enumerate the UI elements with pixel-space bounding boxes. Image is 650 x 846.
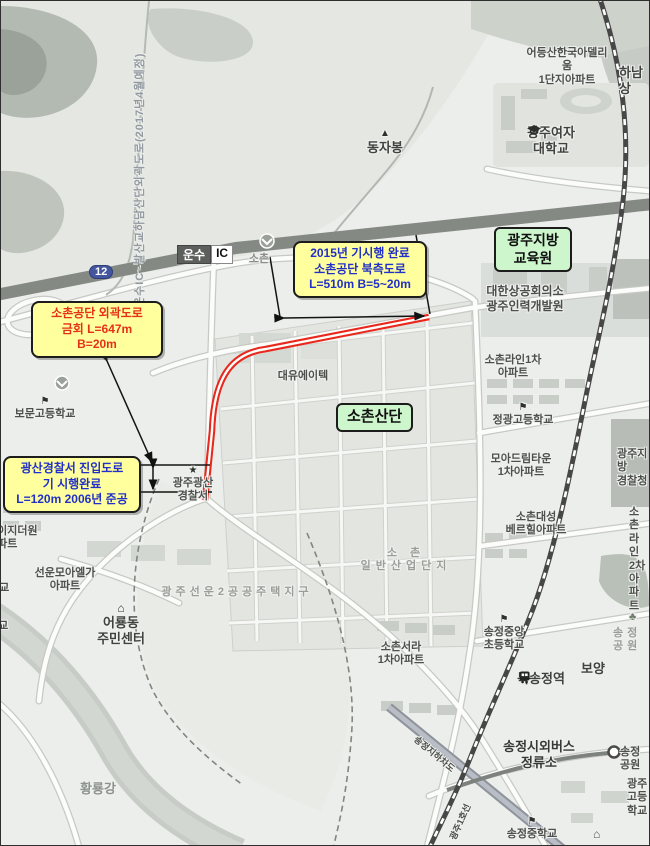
highlight-education-office: 광주지방 교육원 bbox=[494, 227, 572, 272]
label-sochon-daesung-apt: 소촌대성 베르힐아파트 bbox=[506, 511, 567, 538]
label-daeyou-aitech: 대유에이텍 bbox=[278, 370, 329, 383]
label-ejideowon-apt: 구이지더원 아파트 bbox=[0, 525, 38, 552]
label-text: 정광고등학교 bbox=[493, 414, 554, 427]
building-icon: ⌂ bbox=[593, 827, 600, 842]
label-hwangnyong-river: 황룡강 bbox=[80, 781, 116, 797]
interchange-label: 운수 IC bbox=[177, 245, 233, 264]
annotation-line: 소촌공단 북측도로 bbox=[314, 262, 406, 276]
label-school-clipped: 학교 bbox=[0, 620, 8, 633]
label-sochon-small: 소촌 bbox=[249, 253, 269, 266]
annotation-line: 기 시행완료 bbox=[43, 477, 102, 491]
interchange-name: 운수 bbox=[177, 245, 211, 264]
label-adellium-apt: 어등산한국아델리움 1단지아파트 bbox=[526, 47, 608, 87]
label-hanam: 하남상 bbox=[619, 65, 649, 97]
label-text: 광주광산 경찰서 bbox=[173, 477, 213, 504]
tree-icon: ♣ bbox=[629, 611, 636, 624]
school-icon: ⚑ bbox=[528, 817, 537, 827]
school-icon: ⚑ bbox=[500, 615, 509, 625]
label-park-station: 송정공원 bbox=[620, 746, 649, 773]
annotation-line: 광산경찰서 진입도로 bbox=[21, 461, 124, 475]
label-text: 송정중앙 초등학교 bbox=[484, 626, 524, 653]
label-buksongjeong-station: 북송정역 bbox=[517, 671, 565, 687]
label-songjeong-park: 송정공원 bbox=[613, 627, 649, 654]
label-songjeong-ms: ⚑ 송정중학교 bbox=[507, 817, 558, 841]
annotation-outer-road: 소촌공단 외곽도로금회 L=647mB=20m bbox=[31, 301, 163, 358]
label-dongjabong: ▲ 동자봉 bbox=[367, 129, 403, 156]
annotation-line: 소촌공단 외곽도로 bbox=[51, 306, 143, 320]
label-sochon-line1-apt: 소촌라인1차 아파트 bbox=[485, 354, 542, 381]
annotation-line: L=120m 2006년 준공 bbox=[16, 492, 128, 506]
school-icon: ⚑ bbox=[41, 397, 50, 407]
subway-station-marker bbox=[609, 747, 620, 758]
label-gwangsan-police-station: ★ 광주광산 경찰서 bbox=[173, 466, 213, 504]
annotation-line: B=20m bbox=[77, 337, 117, 351]
label-seonun2-district: 광주선운2공공주택지구 bbox=[161, 586, 312, 599]
label-text: 송정중학교 bbox=[507, 828, 558, 841]
label-sochon-seora-apt: 소촌서라 1차아파트 bbox=[378, 641, 425, 668]
annotation-line: 금회 L=647m bbox=[62, 322, 132, 336]
label-eoryong-center: ⌂ 어룡동 주민센터 bbox=[97, 602, 145, 647]
annotation-line: 2015년 기시행 완료 bbox=[310, 246, 410, 260]
label-boyang: 보양 bbox=[581, 661, 605, 677]
school-icon: ⚑ bbox=[519, 403, 528, 413]
interchange-ic-tag: IC bbox=[211, 245, 233, 264]
label-text: 보문고등학교 bbox=[15, 408, 76, 421]
label-gwangju-police-hq: 광주지방 경찰청 bbox=[617, 448, 649, 488]
police-badge-icon: ★ bbox=[189, 466, 198, 476]
label-songjeong-jungang-es: ⚑ 송정중앙 초등학교 bbox=[484, 615, 524, 653]
annotation-line: L=510m B=5~20m bbox=[309, 277, 411, 291]
planned-road-label: 운수IC~발산교하남산단외곽도로(2017년4월예정) bbox=[131, 0, 147, 307]
highlight-sochon-sandan: 소촌산단 bbox=[336, 403, 413, 432]
route-shield: 12 bbox=[89, 265, 113, 279]
label-kcci: 대한상공회의소 광주인력개발원 bbox=[486, 284, 563, 313]
annotation-access-road: 광산경찰서 진입도로기 시행완료L=120m 2006년 준공 bbox=[3, 456, 141, 513]
community-center-icon: ⌂ bbox=[117, 602, 124, 614]
label-school-clipped: 학교 bbox=[0, 582, 9, 595]
map-canvas[interactable]: 운수IC~발산교하남산단외곽도로(2017년4월예정) 운수 IC 12 어등산… bbox=[0, 0, 650, 846]
university-icon bbox=[527, 125, 541, 135]
label-text: 동자봉 bbox=[367, 140, 403, 156]
label-moa-dream-apt: 모아드림타운 1차아파트 bbox=[491, 453, 552, 480]
label-sunun-moa-apt: 선운모아엘가 아파트 bbox=[35, 567, 96, 594]
mountain-peak-icon: ▲ bbox=[380, 129, 390, 139]
label-bomun-hs: ⚑ 보문고등학교 bbox=[15, 397, 76, 421]
label-jeonggwang-hs: ⚑ 정광고등학교 bbox=[493, 403, 554, 427]
label-bus-terminal: 송정시외버스 정류소 bbox=[503, 739, 575, 771]
label-sochon-line2-apt: 소촌라인 2차아파트 bbox=[629, 506, 649, 613]
annotation-north-road: 2015년 기시행 완료소촌공단 북측도로L=510m B=5~20m bbox=[293, 241, 427, 298]
label-sochon-industrial: 소 촌 일반산업단지 bbox=[361, 547, 452, 574]
label-womens-university: 광주여자 대학교 bbox=[527, 125, 575, 157]
label-gwangju-hs: 광주 고등학교 bbox=[627, 778, 649, 818]
train-icon bbox=[517, 671, 532, 684]
label-text: 어룡동 주민센터 bbox=[97, 615, 145, 647]
